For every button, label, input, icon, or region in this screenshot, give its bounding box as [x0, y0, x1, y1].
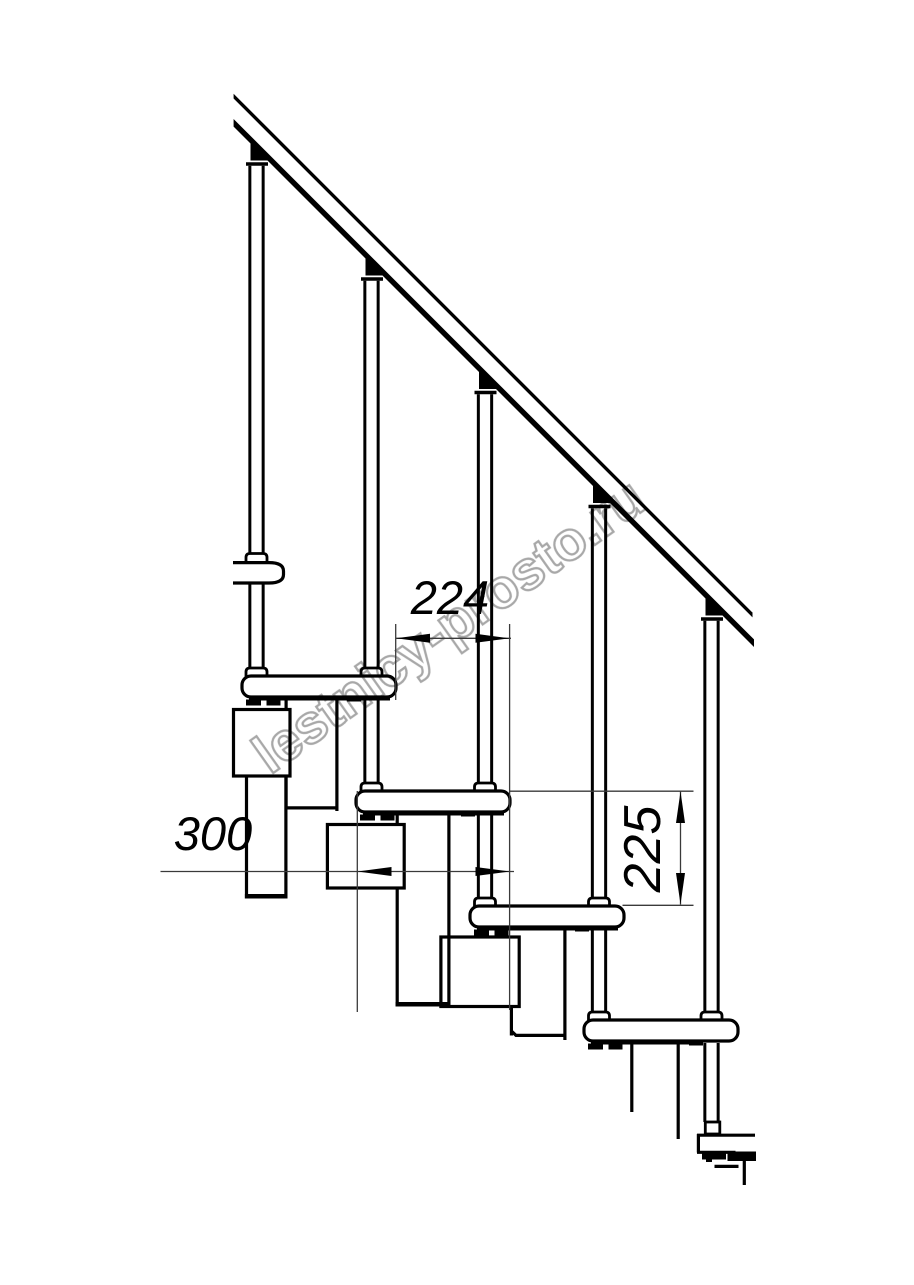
svg-text:300: 300 [174, 807, 252, 860]
svg-text:225: 225 [614, 805, 672, 894]
svg-text:224: 224 [410, 571, 489, 624]
